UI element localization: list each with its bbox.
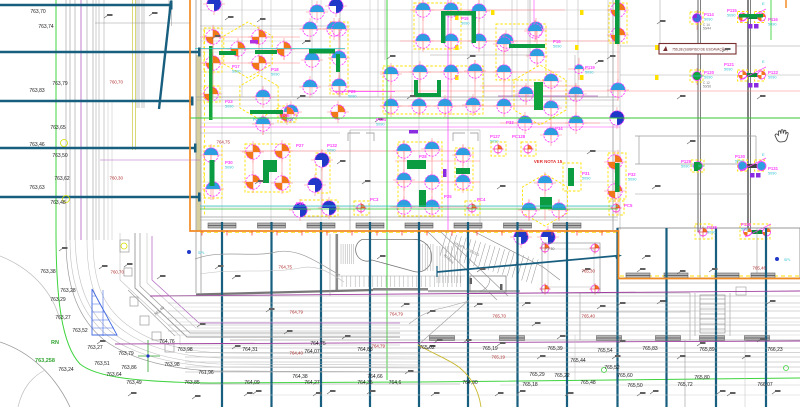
svg-text:763,258: 763,258 — [35, 358, 55, 364]
svg-text:P33: P33 — [506, 120, 514, 125]
svg-text:760,30: 760,30 — [110, 176, 124, 181]
svg-text:765,22: 765,22 — [554, 373, 570, 379]
svg-text:5090: 5090 — [768, 23, 776, 27]
svg-text:PC3: PC3 — [370, 197, 379, 202]
svg-text:P135: P135 — [707, 225, 718, 230]
svg-text:5090: 5090 — [553, 45, 561, 49]
svg-text:764,40: 764,40 — [290, 351, 304, 356]
svg-text:5090: 5090 — [348, 95, 356, 99]
svg-text:763,70: 763,70 — [30, 9, 46, 15]
svg-text:5090: 5090 — [376, 123, 384, 127]
svg-text:5090: 5090 — [628, 178, 636, 182]
svg-text:765,19: 765,19 — [492, 355, 506, 360]
svg-text:E: E — [762, 59, 765, 64]
svg-text:765,72: 765,72 — [677, 382, 693, 388]
svg-text:P16: P16 — [553, 39, 561, 44]
svg-text:763,27: 763,27 — [87, 345, 103, 351]
svg-text:765,89: 765,89 — [699, 347, 715, 353]
svg-text:5090: 5090 — [727, 14, 735, 18]
svg-text:764,79: 764,79 — [390, 312, 404, 317]
svg-text:764,90: 764,90 — [462, 380, 478, 386]
svg-text:5090: 5090 — [585, 71, 593, 75]
svg-text:766,07: 766,07 — [757, 382, 773, 388]
svg-text:E: E — [762, 1, 765, 6]
svg-text:P132: P132 — [327, 143, 338, 148]
svg-text:763,27: 763,27 — [55, 315, 71, 321]
svg-text:P120: P120 — [704, 70, 715, 75]
svg-text:5090: 5090 — [271, 73, 279, 77]
svg-text:P31: P31 — [582, 171, 590, 176]
svg-text:5090: 5090 — [327, 149, 335, 153]
svg-text:P127: P127 — [490, 134, 501, 139]
svg-text:5090: 5090 — [582, 177, 590, 181]
svg-text:PC4: PC4 — [477, 197, 486, 202]
svg-text:763,79: 763,79 — [52, 81, 68, 87]
svg-text:765,48: 765,48 — [580, 380, 596, 386]
svg-text:763,28: 763,28 — [60, 288, 76, 294]
svg-text:5090: 5090 — [704, 76, 712, 80]
svg-text:764,88: 764,88 — [357, 347, 373, 353]
svg-text:5090: 5090 — [232, 70, 240, 74]
svg-text:763,50: 763,50 — [52, 153, 68, 159]
svg-text:761,96: 761,96 — [198, 370, 214, 376]
svg-text:763,86: 763,86 — [121, 365, 137, 371]
svg-text:P32: P32 — [628, 172, 636, 177]
svg-text:763,62: 763,62 — [54, 176, 70, 182]
svg-text:764,09: 764,09 — [244, 380, 260, 386]
svg-text:763,64: 763,64 — [106, 372, 122, 378]
svg-text:763,46: 763,46 — [29, 142, 45, 148]
svg-text:50/44: 50/44 — [703, 27, 711, 31]
svg-text:P28: P28 — [419, 154, 427, 159]
svg-text:P131: P131 — [768, 166, 779, 171]
svg-text:5090: 5090 — [724, 68, 732, 72]
svg-text:764,31: 764,31 — [242, 347, 258, 353]
svg-text:P122: P122 — [768, 70, 779, 75]
svg-text:PC5: PC5 — [624, 203, 633, 208]
svg-text:763,48: 763,48 — [50, 200, 66, 206]
svg-text:760,70: 760,70 — [111, 270, 125, 275]
svg-text:5090: 5090 — [225, 105, 233, 109]
svg-text:5090: 5090 — [490, 140, 498, 144]
svg-text:765,52: 765,52 — [604, 365, 620, 371]
svg-text:765,46: 765,46 — [753, 266, 767, 271]
svg-text:P18: P18 — [271, 67, 279, 72]
svg-text:765,39: 765,39 — [547, 346, 563, 352]
svg-text:765,54: 765,54 — [597, 348, 613, 354]
svg-text:764,75: 764,75 — [217, 140, 231, 145]
svg-text:P119: P119 — [585, 65, 595, 70]
svg-text:P30: P30 — [225, 160, 233, 165]
svg-text:764,75: 764,75 — [310, 341, 326, 347]
svg-text:P23: P23 — [225, 99, 233, 104]
svg-text:P.T 50: P.T 50 — [545, 247, 555, 251]
svg-text:764,27: 764,27 — [304, 380, 320, 386]
svg-text:763,65: 763,65 — [50, 125, 66, 131]
svg-text:765,83: 765,83 — [642, 346, 658, 352]
svg-text:763,85: 763,85 — [184, 380, 200, 386]
svg-text:VER NOTA 15: VER NOTA 15 — [534, 159, 563, 164]
svg-text:P136: P136 — [741, 222, 752, 227]
svg-text:765,19: 765,19 — [482, 346, 498, 352]
svg-text:764,6: 764,6 — [389, 380, 402, 386]
svg-text:763,51: 763,51 — [94, 361, 110, 367]
svg-text:765,70: 765,70 — [493, 314, 507, 319]
svg-text:P34: P34 — [555, 126, 563, 131]
svg-text:P17: P17 — [232, 64, 240, 69]
svg-text:765,44: 765,44 — [570, 358, 586, 364]
svg-text:765,29: 765,29 — [529, 372, 545, 378]
svg-text:763,38: 763,38 — [40, 269, 56, 275]
svg-text:765,02: 765,02 — [419, 345, 435, 351]
svg-text:P115: P115 — [727, 8, 737, 13]
svg-text:P27: P27 — [296, 143, 304, 148]
svg-text:P39: P39 — [296, 201, 304, 206]
svg-text:765,80: 765,80 — [694, 375, 710, 381]
svg-text:RN: RN — [51, 340, 59, 346]
svg-text:5090: 5090 — [735, 160, 743, 164]
svg-text:763,83: 763,83 — [29, 88, 45, 94]
svg-text:SPL: SPL — [198, 251, 205, 255]
svg-text:765,40: 765,40 — [582, 314, 596, 319]
svg-text:5090: 5090 — [768, 172, 776, 176]
svg-text:E: E — [762, 152, 765, 157]
svg-text:765,50: 765,50 — [627, 383, 643, 389]
svg-text:764,76: 764,76 — [159, 339, 175, 345]
svg-text:P25: P25 — [444, 194, 452, 199]
svg-text:764,07: 764,07 — [304, 349, 320, 355]
svg-text:5090: 5090 — [768, 76, 776, 80]
svg-text:763,63: 763,63 — [29, 185, 45, 191]
svg-text:P129: P129 — [681, 159, 692, 164]
svg-text:763,49: 763,49 — [126, 380, 142, 386]
svg-text:765,30: 765,30 — [582, 269, 596, 274]
svg-text:763,98: 763,98 — [164, 362, 180, 368]
svg-text:P15: P15 — [461, 16, 469, 21]
svg-text:763,98: 763,98 — [177, 347, 193, 353]
svg-text:763,79: 763,79 — [118, 351, 134, 357]
svg-text:P114: P114 — [704, 12, 714, 17]
svg-text:PC2: PC2 — [253, 118, 260, 122]
svg-text:P124: P124 — [376, 117, 387, 122]
svg-text:PC128: PC128 — [512, 134, 526, 139]
svg-text:PC1: PC1 — [286, 118, 293, 122]
svg-text:763,24: 763,24 — [58, 367, 74, 373]
svg-text:5090: 5090 — [741, 228, 749, 232]
svg-text:764,75: 764,75 — [279, 265, 293, 270]
svg-text:763,74: 763,74 — [38, 24, 54, 30]
svg-text:763,29: 763,29 — [50, 297, 66, 303]
svg-text:764,79: 764,79 — [372, 344, 386, 349]
svg-text:763,52: 763,52 — [72, 328, 88, 334]
svg-text:765,18: 765,18 — [522, 382, 538, 388]
svg-text:760,70: 760,70 — [110, 80, 124, 85]
svg-text:SPL: SPL — [784, 258, 791, 262]
svg-text:P116: P116 — [768, 17, 778, 22]
svg-text:766,23: 766,23 — [767, 347, 783, 353]
svg-text:5090: 5090 — [707, 231, 715, 235]
svg-text:5090: 5090 — [704, 18, 712, 22]
svg-text:P29: P29 — [348, 89, 356, 94]
svg-text:50/36: 50/36 — [703, 85, 711, 89]
svg-text:P130: P130 — [735, 154, 746, 159]
svg-text:5090: 5090 — [681, 165, 689, 169]
svg-text:765,60: 765,60 — [617, 373, 633, 379]
svg-text:764,35: 764,35 — [357, 380, 373, 386]
svg-text:5090: 5090 — [225, 166, 233, 170]
svg-text:756,38 (SUBPISO DE ESCAVAÇÃO): 756,38 (SUBPISO DE ESCAVAÇÃO) — [672, 47, 728, 52]
svg-text:5090: 5090 — [461, 22, 469, 26]
svg-text:764,79: 764,79 — [290, 310, 304, 315]
svg-text:P121: P121 — [724, 62, 735, 67]
